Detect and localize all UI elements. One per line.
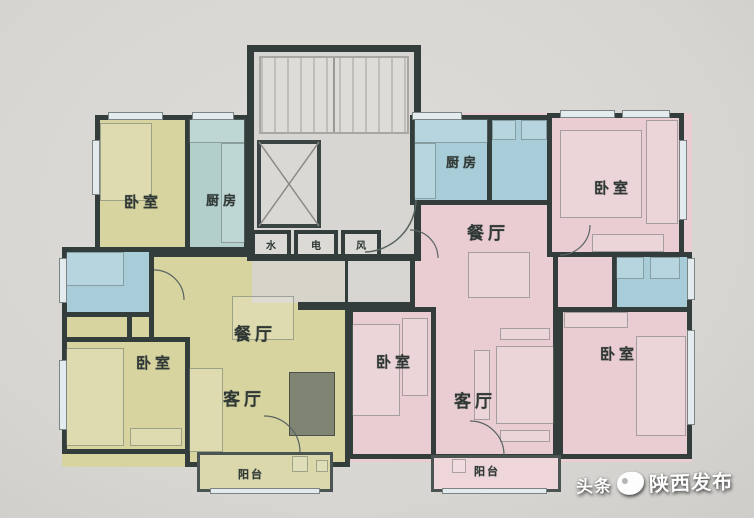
floor-plan: 水 电 风 xyxy=(0,0,754,518)
label-bedroom-left-top: 卧室 xyxy=(98,190,184,212)
coffee-table xyxy=(496,346,554,424)
window xyxy=(687,330,695,425)
tv-cabinet xyxy=(289,372,335,436)
window xyxy=(192,112,234,120)
label-kitchen-left: 厨房 xyxy=(188,189,254,209)
dining-table xyxy=(468,252,530,298)
window xyxy=(622,110,670,118)
shaft-vent-label: 风 xyxy=(356,237,366,252)
wardrobe xyxy=(646,120,678,224)
window xyxy=(108,112,163,120)
label-bedroom-right-top: 卧室 xyxy=(568,176,654,198)
window xyxy=(412,112,462,120)
bathtub xyxy=(66,252,124,286)
label-balcony-right: 阳台 xyxy=(450,463,520,479)
window xyxy=(92,140,100,195)
stairs xyxy=(259,56,409,134)
toutiao-logo-icon xyxy=(617,471,645,495)
window xyxy=(687,258,695,300)
label-living-right: 客厅 xyxy=(423,387,523,411)
window xyxy=(679,140,687,220)
watermark-platform: 头条 xyxy=(576,471,613,497)
sofa xyxy=(189,368,223,452)
elevator-shaft xyxy=(257,140,321,228)
toilet xyxy=(521,120,547,140)
label-bedroom-right-left: 卧室 xyxy=(350,350,436,372)
dresser xyxy=(130,428,182,446)
label-bedroom-right-right: 卧室 xyxy=(574,342,660,364)
window xyxy=(59,258,67,303)
label-dining-right: 餐厅 xyxy=(436,219,536,243)
watermark: 头条 陕西发布 xyxy=(576,465,734,499)
sink xyxy=(616,257,644,279)
sink xyxy=(492,120,516,140)
plant xyxy=(316,460,328,472)
window xyxy=(59,360,67,430)
sofa xyxy=(500,328,550,340)
bed xyxy=(560,130,642,218)
wardrobe xyxy=(564,312,628,328)
window xyxy=(560,110,615,118)
window xyxy=(442,488,547,494)
window xyxy=(210,488,320,494)
label-bedroom-left-bottom: 卧室 xyxy=(110,351,196,373)
foyer-wall-stub xyxy=(298,302,352,310)
sofa xyxy=(500,430,550,442)
label-kitchen-right: 厨房 xyxy=(427,151,495,171)
dresser xyxy=(592,234,664,252)
label-living-left: 客厅 xyxy=(192,385,292,409)
shaft-water: 水 xyxy=(251,230,291,258)
shaft-electric: 电 xyxy=(294,230,338,258)
shaft-vent: 风 xyxy=(341,230,381,258)
shaft-electric-label: 电 xyxy=(311,237,321,252)
kitchen-counter xyxy=(189,119,245,143)
shaft-water-label: 水 xyxy=(266,237,276,252)
washer xyxy=(650,257,680,279)
kitchen-counter xyxy=(414,119,488,143)
plant xyxy=(292,456,308,472)
watermark-account: 陕西发布 xyxy=(648,465,733,497)
label-balcony-left: 阳台 xyxy=(214,466,284,482)
label-dining-left: 餐厅 xyxy=(203,320,303,344)
